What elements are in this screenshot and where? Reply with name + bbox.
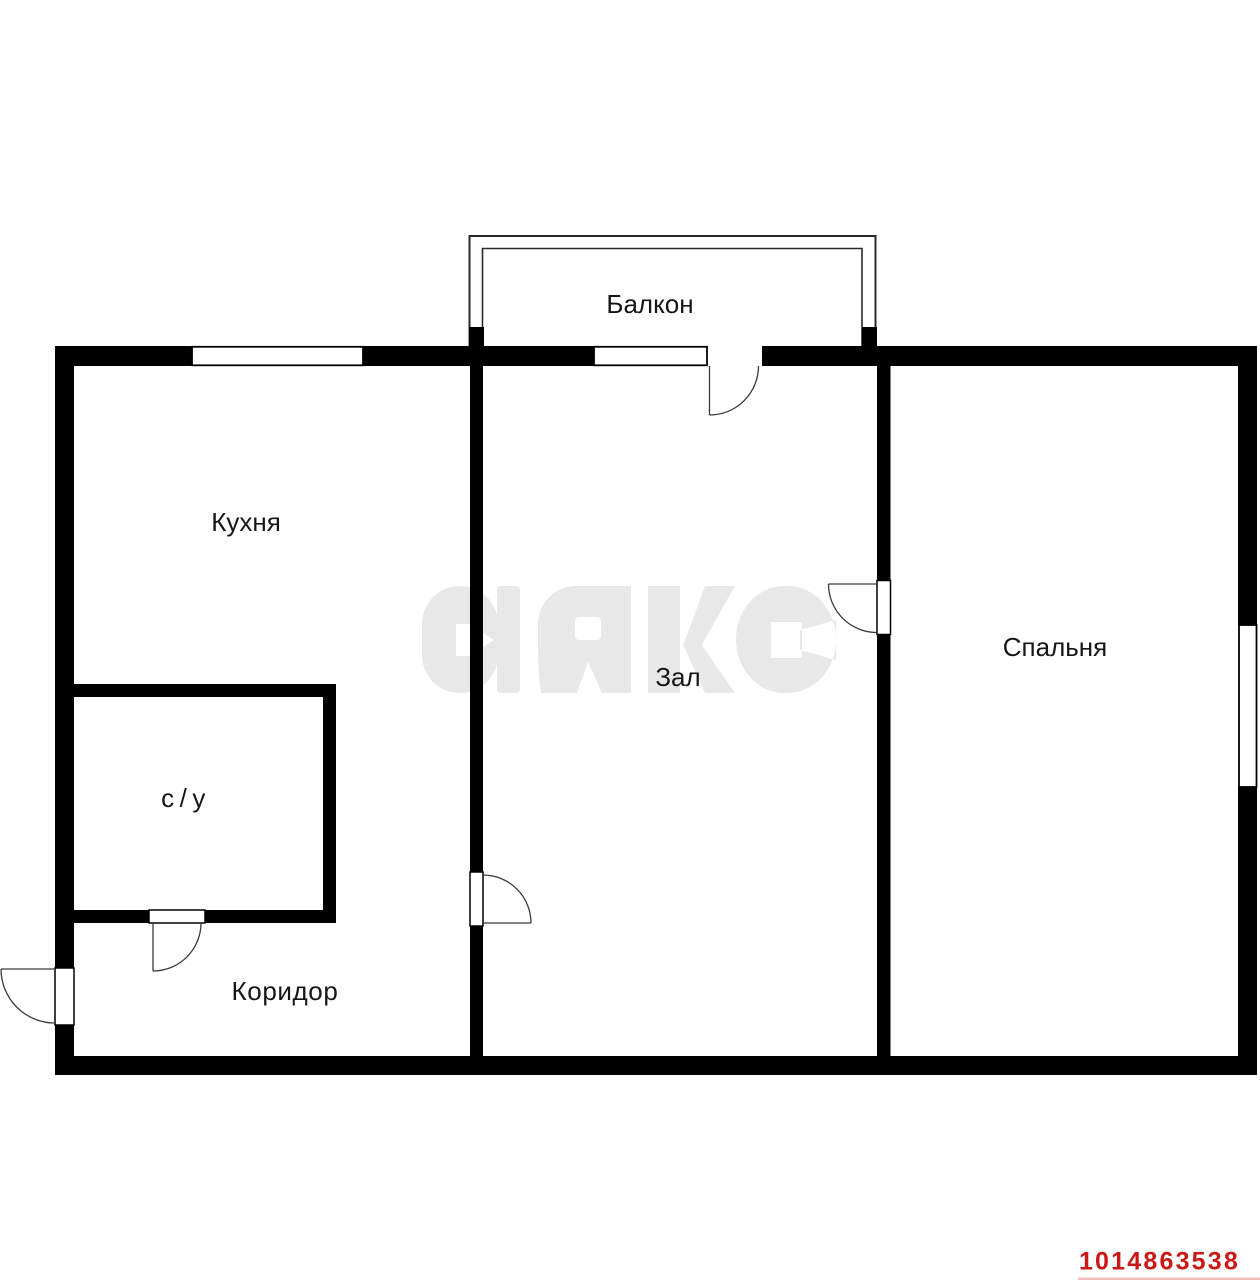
svg-text:Балкон: Балкон: [606, 289, 693, 319]
svg-text:Зал: Зал: [655, 662, 700, 692]
svg-text:с/у: с/у: [161, 783, 211, 813]
svg-text:Коридор: Коридор: [232, 976, 339, 1006]
svg-text:Спальня: Спальня: [1003, 632, 1107, 662]
svg-text:1014863538: 1014863538: [1079, 1248, 1240, 1276]
svg-text:Кухня: Кухня: [211, 507, 281, 537]
